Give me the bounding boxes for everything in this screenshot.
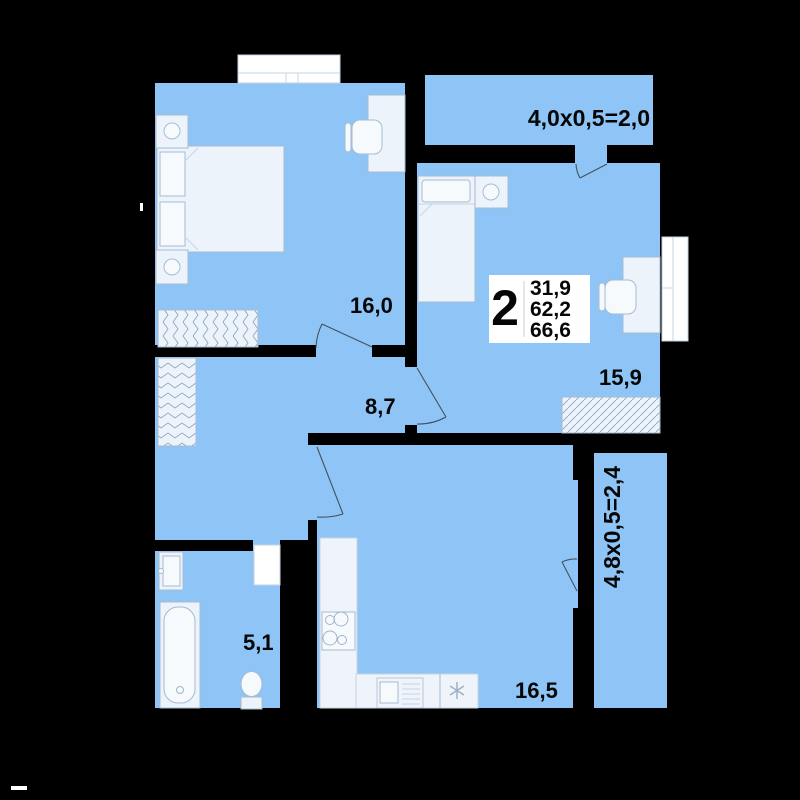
- door-opening-living: [307, 445, 317, 520]
- wardrobe-icon: [158, 358, 196, 446]
- door-opening-balcony-top: [575, 145, 607, 163]
- nightstand-icon: [475, 176, 508, 208]
- radiator-wardrobe-icon: [562, 397, 660, 433]
- window-tick-left-wall: [140, 203, 143, 211]
- window-bedroom2-right: [662, 237, 688, 341]
- rooms-count: 2: [491, 280, 519, 336]
- area-main: 62,2: [530, 298, 571, 321]
- double-bed-icon: [157, 146, 284, 252]
- window-bedroom-top: [238, 55, 340, 83]
- nightstand-icon: [156, 115, 188, 148]
- stove-icon: [322, 612, 355, 650]
- door-opening-bedroom2: [405, 367, 417, 425]
- chair-icon: [345, 120, 382, 154]
- door-opening-bedroom: [316, 345, 372, 357]
- label-hallway-area: 8,7: [365, 394, 396, 419]
- wardrobe-icon: [158, 310, 258, 347]
- label-kitchen-area: 16,5: [515, 678, 558, 703]
- label-balcony-right: 4,8x0,5=2,4: [599, 466, 625, 588]
- scale-mark: [11, 786, 27, 790]
- label-bedroom2-area: 15,9: [599, 365, 642, 390]
- bathtub-icon: [160, 602, 200, 708]
- toilet-icon: [241, 672, 262, 710]
- bathroom-door-leaf: [254, 545, 280, 585]
- sink-icon: [159, 552, 184, 590]
- single-bed-icon: [418, 176, 475, 302]
- area-living: 31,9: [530, 277, 571, 300]
- floor-plan: 2 31,9 62,2 66,6 16,0 8,7 15,9 5,1 16,5 …: [0, 0, 800, 800]
- label-bathroom-area: 5,1: [243, 630, 274, 655]
- label-balcony-top: 4,0x0,5=2,0: [528, 105, 650, 131]
- area-total: 66,6: [530, 319, 571, 342]
- label-bedroom-area: 16,0: [350, 293, 393, 318]
- unit-info-badge: 2 31,9 62,2 66,6: [489, 275, 590, 343]
- nightstand-icon: [156, 250, 188, 284]
- chair-icon: [599, 280, 636, 314]
